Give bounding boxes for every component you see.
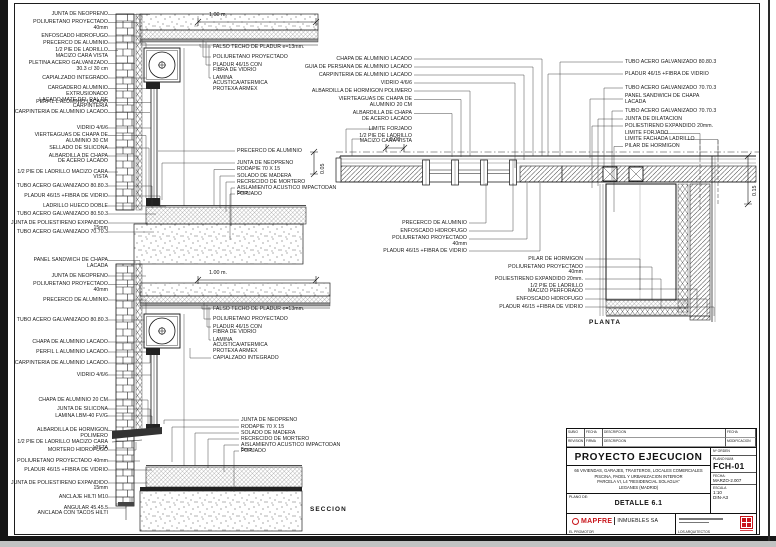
material-label: CARPINTERIA DE ALUMINIO LACADO xyxy=(8,361,108,367)
material-label: LIMITE FORJADO xyxy=(300,127,412,133)
material-label: GUIA DE PERSIANA DE ALUMINIO LACADO xyxy=(300,65,412,71)
architects-logo-text-smudge xyxy=(740,530,753,531)
material-label: PANEL SANDWICH DE CHAPA LACADA xyxy=(8,258,108,270)
drawing-title: DETALLE 6.1 xyxy=(567,500,710,507)
revision-header: MODIFICACION xyxy=(726,438,756,447)
material-label: TUBO ACERO GALVANIZADO 80.80.3 xyxy=(625,60,747,66)
revision-header: FECHA xyxy=(585,429,603,438)
material-label: POLIURETANO PROYECTADO 40mm xyxy=(471,265,583,277)
material-label: ANCLAJE HILTI M10 xyxy=(8,495,108,501)
dimension-label: 0.05 xyxy=(320,150,326,174)
material-label: CARGADERO ALUMINIO EXTRUSIONADO LACADO M… xyxy=(8,86,108,110)
material-label: PILAR DE HORMIGON xyxy=(625,144,747,150)
material-label: JUNTA DE NEOPRENO xyxy=(8,12,108,18)
project-description-line: LEGANES (MADRID) xyxy=(567,485,710,491)
revision-header: SUBIO xyxy=(567,429,585,438)
material-label: ALBARDILLA DE CHAPA DE ACERO LACADO xyxy=(300,111,412,123)
project-title: PROYECTO EJECUCION xyxy=(567,448,710,466)
material-label: FALSO TECHO DE PLADUR e=13mm. xyxy=(213,307,307,313)
scan-edge-under xyxy=(0,541,776,547)
material-label: TUBO ACERO GALVANIZADO 70.70.3 xyxy=(625,86,747,92)
project-description: 66 VIVIENDAS, GARAJES, TRASTEROS, LOCALE… xyxy=(567,466,710,494)
promoter-caption: EL PROMOTOR xyxy=(569,530,594,534)
material-label: ALBARDILLA DE CHAPA DE ACERO LACADO xyxy=(8,154,108,166)
material-label: JUNTA DE SILICONA xyxy=(8,407,108,413)
material-label: POLIESTIRENO EXPANDIDO 20mm. xyxy=(471,277,583,283)
material-label: VIERTEAGUAS DE CHAPA DE ALUMINIO 30 CM xyxy=(8,133,108,145)
revision-table: SUBIO FECHA DESCRIPCION FECHA REVISION F… xyxy=(567,429,756,448)
material-label: TUBO ACERO GALVANIZADO 80.80.3 xyxy=(8,184,108,190)
material-label: CAPIALZADO INTEGRADO xyxy=(213,356,307,362)
material-label: CHAPA DE ALUMINIO 20 CM xyxy=(8,398,108,404)
section-caption: SECCION xyxy=(310,506,347,513)
material-label: 1/2 PIE DE LADRILLO MACIZO CARA VISTA xyxy=(8,48,108,60)
architects-signature-smudge xyxy=(679,522,709,524)
material-label: TUBO ACERO GALVANIZADO 70.70.3 xyxy=(625,109,747,115)
material-label: LAMINA LBM-40 FV/G xyxy=(8,414,108,420)
title-block: SUBIO FECHA DESCRIPCION FECHA REVISION F… xyxy=(566,428,757,535)
material-label: VIDRIO 4/6/6 xyxy=(300,81,412,87)
material-label: LAMINA ACUSTICA/ATERMICA PROTEXA ARMEX xyxy=(213,76,307,94)
plano-num-value: FCH-01 xyxy=(713,461,754,471)
material-label: VIERTEAGUAS DE CHAPA DE ALUMINIO 20 CM xyxy=(300,97,412,109)
architects-logo-icon xyxy=(740,516,753,529)
sheet-cut-edge xyxy=(768,0,770,541)
material-label: JUNTA DE NEOPRENO xyxy=(241,418,345,424)
material-label: FORJADO xyxy=(241,449,345,455)
material-label: SELLADO DE SILICONA xyxy=(8,146,108,152)
material-label: PLADUR 46/15 CON FIBRA DE VIDRIO xyxy=(213,63,307,75)
material-label: PLADUR 46/15 +FIBRA DE VIDRIO xyxy=(471,305,583,311)
promoter-suffix: INMUEBLES SA xyxy=(617,518,658,524)
material-label: PLETINA ACERO GALVANIZADO 30.3 c/ 30 cm xyxy=(8,61,108,73)
dimension-label: 1.00 m. xyxy=(198,270,238,276)
material-label: TUBO ACERO GALVANIZADO 80.50.3 xyxy=(8,212,108,218)
material-label: JUNTA DE NEOPRENO xyxy=(8,274,108,280)
material-label: LAMINA ACUSTICA/ATERMICA PROTEXA ARMEX xyxy=(213,338,307,356)
architects-signature-smudge xyxy=(679,518,723,520)
fecha-value: MARZO-2.007 xyxy=(713,478,754,483)
material-label: ALBARDILLA DE HORMIGON POLIMERO xyxy=(300,89,412,95)
promoter-cell: MAPFRE INMUEBLES SA EL PROMOTOR xyxy=(567,514,676,535)
material-label: JUNTA DE POLIESTIRENO EXPANDIDO 15mm xyxy=(8,481,108,493)
material-label: PRECERCO DE ALUMINIO xyxy=(8,298,108,304)
mapfre-logo-icon xyxy=(572,518,579,525)
material-label: PANEL SANDWICH DE CHAPA LACADA xyxy=(625,94,747,106)
dimension-label: 0.15 xyxy=(752,172,758,196)
revision-header: FECHA xyxy=(726,429,756,438)
revision-header: FIRMA xyxy=(585,438,603,447)
material-label: ANGULAR 45.45.5 ANCLADA CON TACOS HILTI xyxy=(8,506,108,518)
material-label: PRECERCO DE ALUMINIO xyxy=(355,221,467,227)
revision-header: DESCRIPCION xyxy=(603,438,726,447)
material-label: POLIURETANO PROYECTADO 40mm xyxy=(8,459,108,465)
material-label: CHAPA DE ALUMINIO LACADO xyxy=(8,340,108,346)
material-label: MORTERO HIDROFUGO xyxy=(8,448,108,454)
material-label: LADRILLO HUECO DOBLE xyxy=(8,204,108,210)
material-label: VIDRIO 4/6/6 xyxy=(8,373,108,379)
architects-cell: LOS ARQUITECTOS xyxy=(676,514,756,535)
material-label: ENFOSCADO HIDROFUGO xyxy=(8,34,108,40)
material-label: POLIURETANO PROYECTADO xyxy=(213,317,307,323)
plano-de-label: PLANO DE: xyxy=(569,495,588,499)
divider xyxy=(614,517,615,525)
material-label: 1/2 PIE DE LADRILLO MACIZO PERFORADO xyxy=(471,284,583,296)
material-label: PRECERCO DE ALUMINIO xyxy=(8,41,108,47)
material-label: JUNTA DE DILATACION xyxy=(625,117,747,123)
material-label: VIDRIO 4/6/6 xyxy=(8,126,108,132)
material-label: TUBO ACERO GALVANIZADO 70.70.3 xyxy=(8,230,108,236)
project-description-line: 66 VIVIENDAS, GARAJES, TRASTEROS, LOCALE… xyxy=(567,468,710,474)
mapfre-brand: MAPFRE xyxy=(581,518,612,525)
material-label: PLADUR 46/15 +FIBRA DE VIDRIO xyxy=(625,72,747,78)
material-label: POLIURETANO PROYECTADO 40mm xyxy=(8,20,108,32)
architects-caption: LOS ARQUITECTOS xyxy=(678,530,710,534)
material-label: PILAR DE HORMIGON xyxy=(471,257,583,263)
material-label: CAPIALZADO INTEGRADO xyxy=(8,76,108,82)
plan-caption: PLANTA xyxy=(589,319,621,326)
material-label: POLIURETANO PROYECTADO xyxy=(213,55,307,61)
material-label: POLIURETANO PROYECTADO 40mm xyxy=(8,282,108,294)
orden-label: Nº ORDEN xyxy=(711,448,756,456)
material-label: CHAPA DE ALUMINIO LACADO xyxy=(300,57,412,63)
material-label: PLADUR 46/15 CON FIBRA DE VIDRIO xyxy=(213,325,307,337)
dimension-label: 1.00 m. xyxy=(198,12,238,18)
scan-edge-left xyxy=(0,0,8,547)
revision-header: DESCRIPCION xyxy=(603,429,726,438)
material-label: FALSO TECHO DE PLADUR e=13mm. xyxy=(213,45,307,51)
material-label: CARPINTERIA DE ALUMINIO LACADO xyxy=(300,73,412,79)
formato-value: DIN-A3 xyxy=(713,495,754,500)
material-label: ENFOSCADO HIDROFUGO xyxy=(471,297,583,303)
material-label: POLIURETANO PROYECTADO 40mm xyxy=(355,236,467,248)
material-label: POLIESTIRENO EXPANDIDO 20mm. xyxy=(625,124,747,130)
material-label: CARPINTERIA DE ALUMINIO LACADO xyxy=(8,110,108,116)
revision-header: REVISION xyxy=(567,438,585,447)
material-label: PERFIL L ALUMINIO LACADO xyxy=(8,350,108,356)
material-label: PLADUR 46/15 +FIBRA DE VIDRIO xyxy=(8,468,108,474)
material-label: TUBO ACERO GALVANIZADO 80.80.3 xyxy=(8,318,108,324)
material-label: 1/2 PIE DE LADRILLO MACIZO CARA VISTA xyxy=(8,170,108,182)
drawing-sheet: JUNTA DE NEOPRENO POLIURETANO PROYECTADO… xyxy=(0,0,776,547)
material-label: ENFOSCADO HIDROFUGO xyxy=(355,229,467,235)
material-label: PERFIL L ALUMINIO LACADO xyxy=(8,100,108,106)
material-label: PLADUR 46/15 +FIBRA DE VIDRIO xyxy=(355,249,467,255)
material-label: FORJADO xyxy=(237,192,341,198)
dimension-label: 0.08 xyxy=(382,137,408,143)
material-label: PLADUR 46/15 +FIBRA DE VIDRIO xyxy=(8,194,108,200)
